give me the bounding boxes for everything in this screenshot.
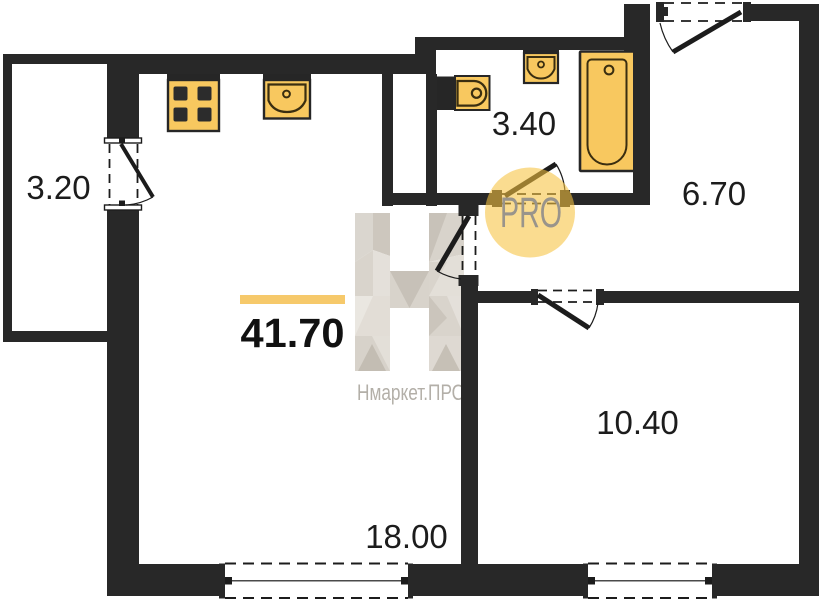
svg-text:3.20: 3.20 [26,169,90,206]
svg-text:3.40: 3.40 [492,105,556,142]
svg-text:PRO: PRO [500,189,562,237]
svg-text:10.40: 10.40 [596,404,679,441]
svg-text:6.70: 6.70 [682,175,746,212]
svg-text:18.00: 18.00 [365,518,448,555]
svg-text:41.70: 41.70 [241,310,345,356]
svg-text:Нмаркет.ПРО: Нмаркет.ПРО [357,380,465,405]
